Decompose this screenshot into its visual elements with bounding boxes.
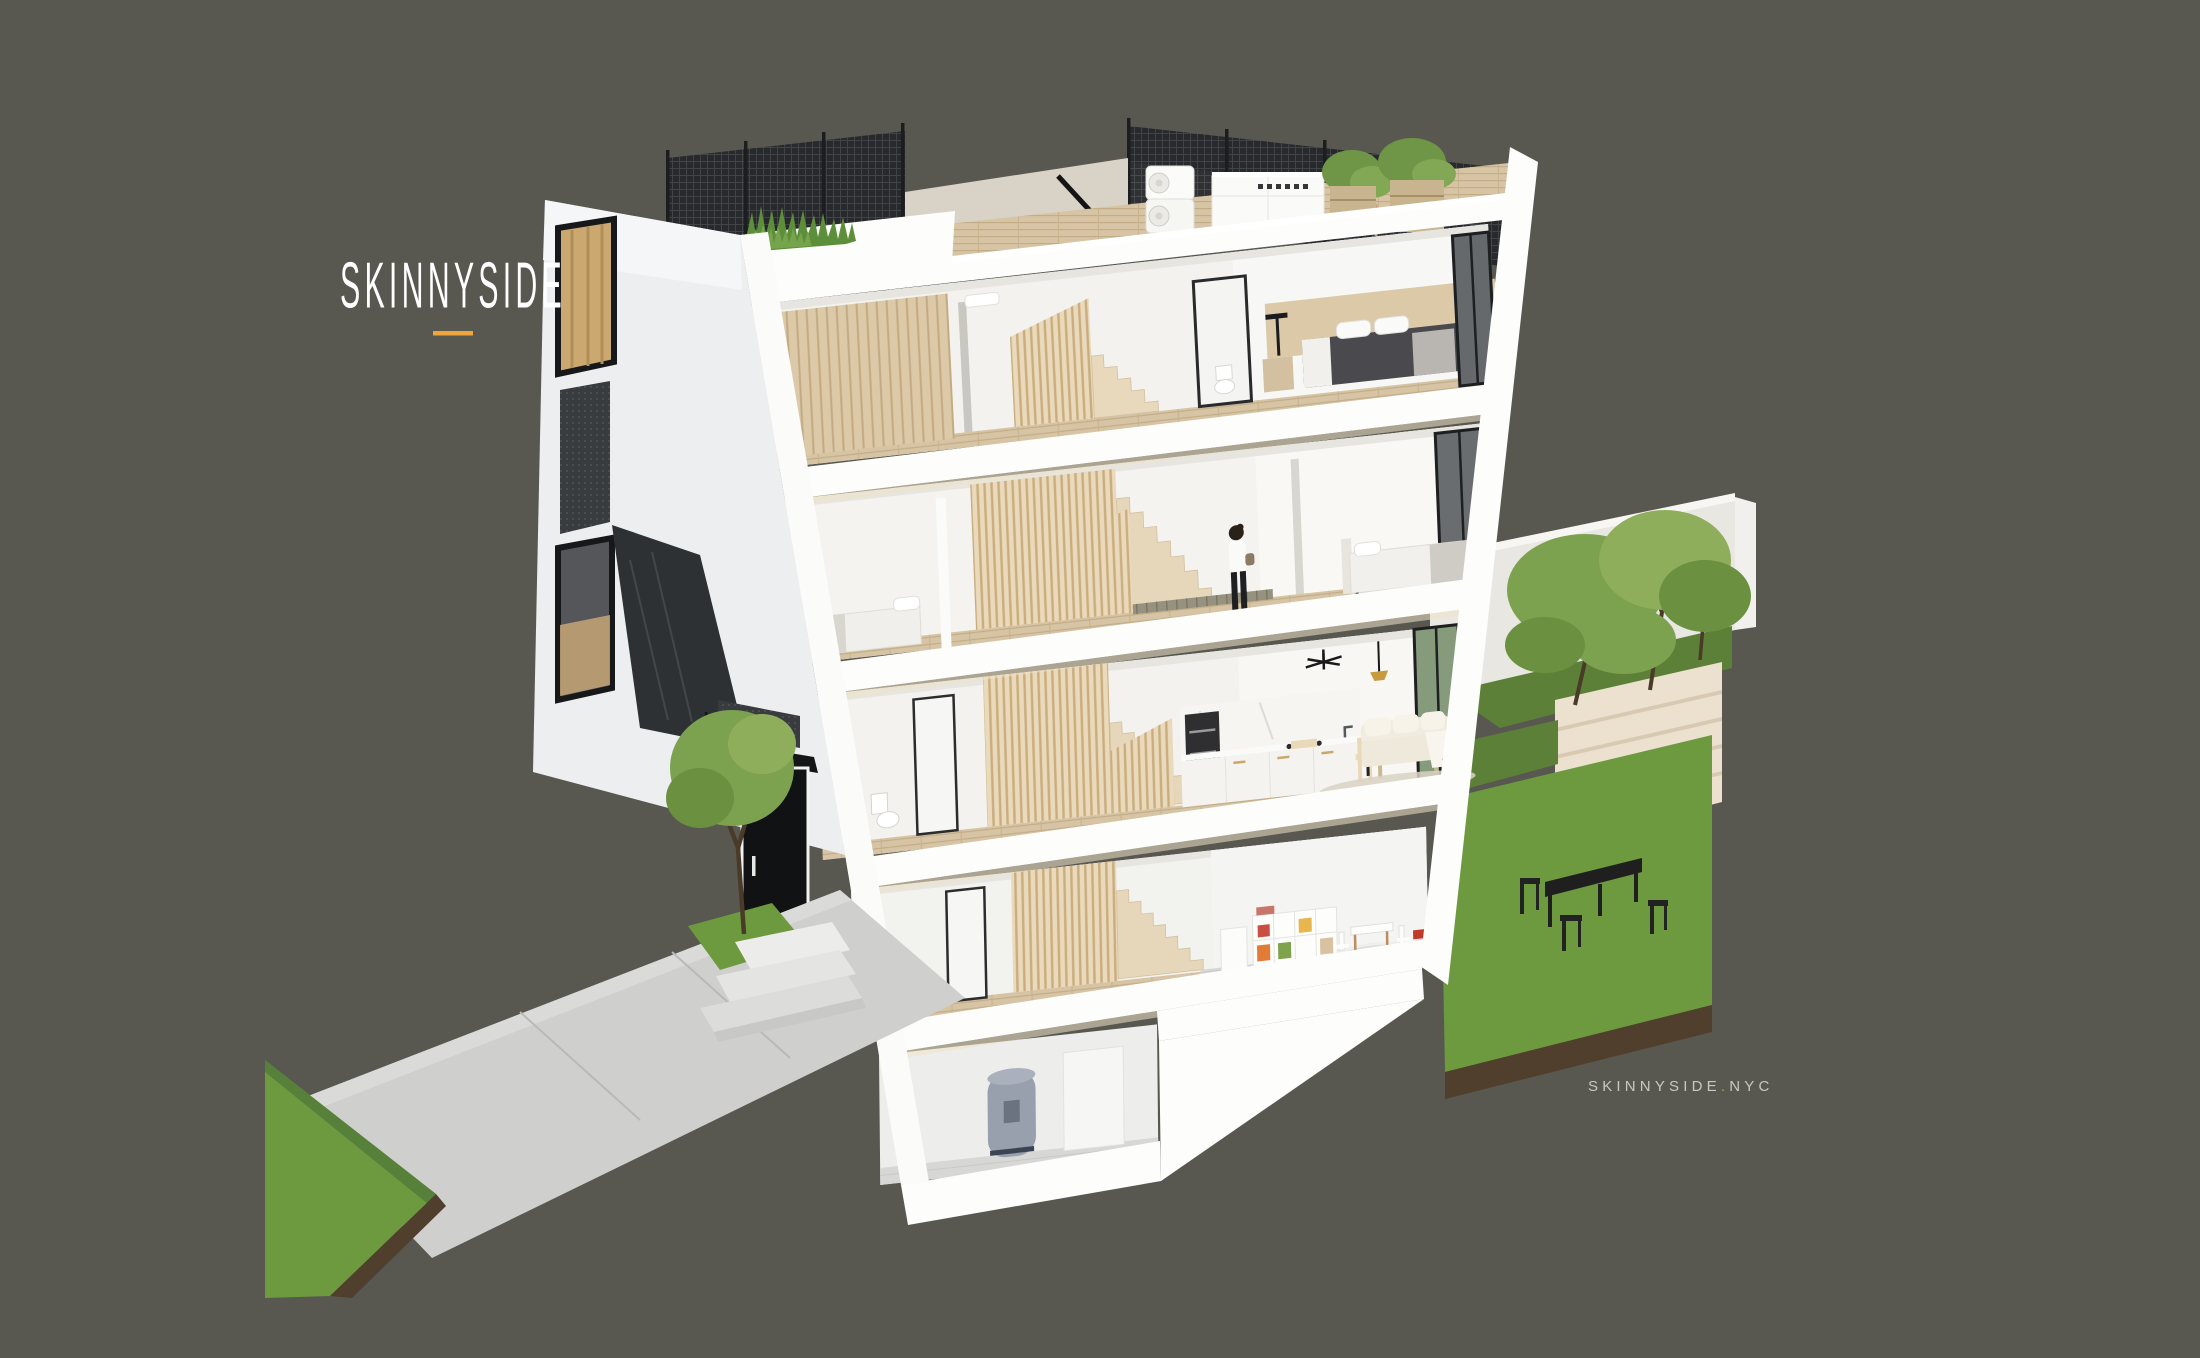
footer-url: SKINNYSIDE.NYC bbox=[1588, 1078, 1774, 1095]
brand-logo-underline bbox=[433, 331, 473, 336]
stair-slat-screen bbox=[1011, 861, 1118, 993]
brand-logo: SKINNYSIDE bbox=[338, 246, 658, 366]
footer-brand: SKINNYSIDE bbox=[1588, 1078, 1721, 1095]
roof-hvac-units bbox=[1146, 166, 1194, 233]
footer-tld: NYC bbox=[1729, 1078, 1773, 1095]
stage: SKINNYSIDE SKINNYSIDE.NYC bbox=[0, 0, 2200, 1358]
closet-wall bbox=[778, 294, 955, 458]
brand-logo-text: SKINNYSIDE bbox=[340, 250, 566, 322]
toy-cabinet bbox=[1221, 927, 1248, 972]
bay-window-mid bbox=[558, 538, 612, 700]
nightstand bbox=[1263, 356, 1295, 392]
footer-dot: . bbox=[1721, 1078, 1729, 1095]
perforated-panel bbox=[560, 381, 610, 534]
water-heater bbox=[987, 1066, 1036, 1159]
stair-slat-screen bbox=[983, 663, 1113, 827]
cellar-partition bbox=[1063, 1046, 1124, 1151]
building-cutaway-illustration bbox=[0, 0, 2200, 1358]
